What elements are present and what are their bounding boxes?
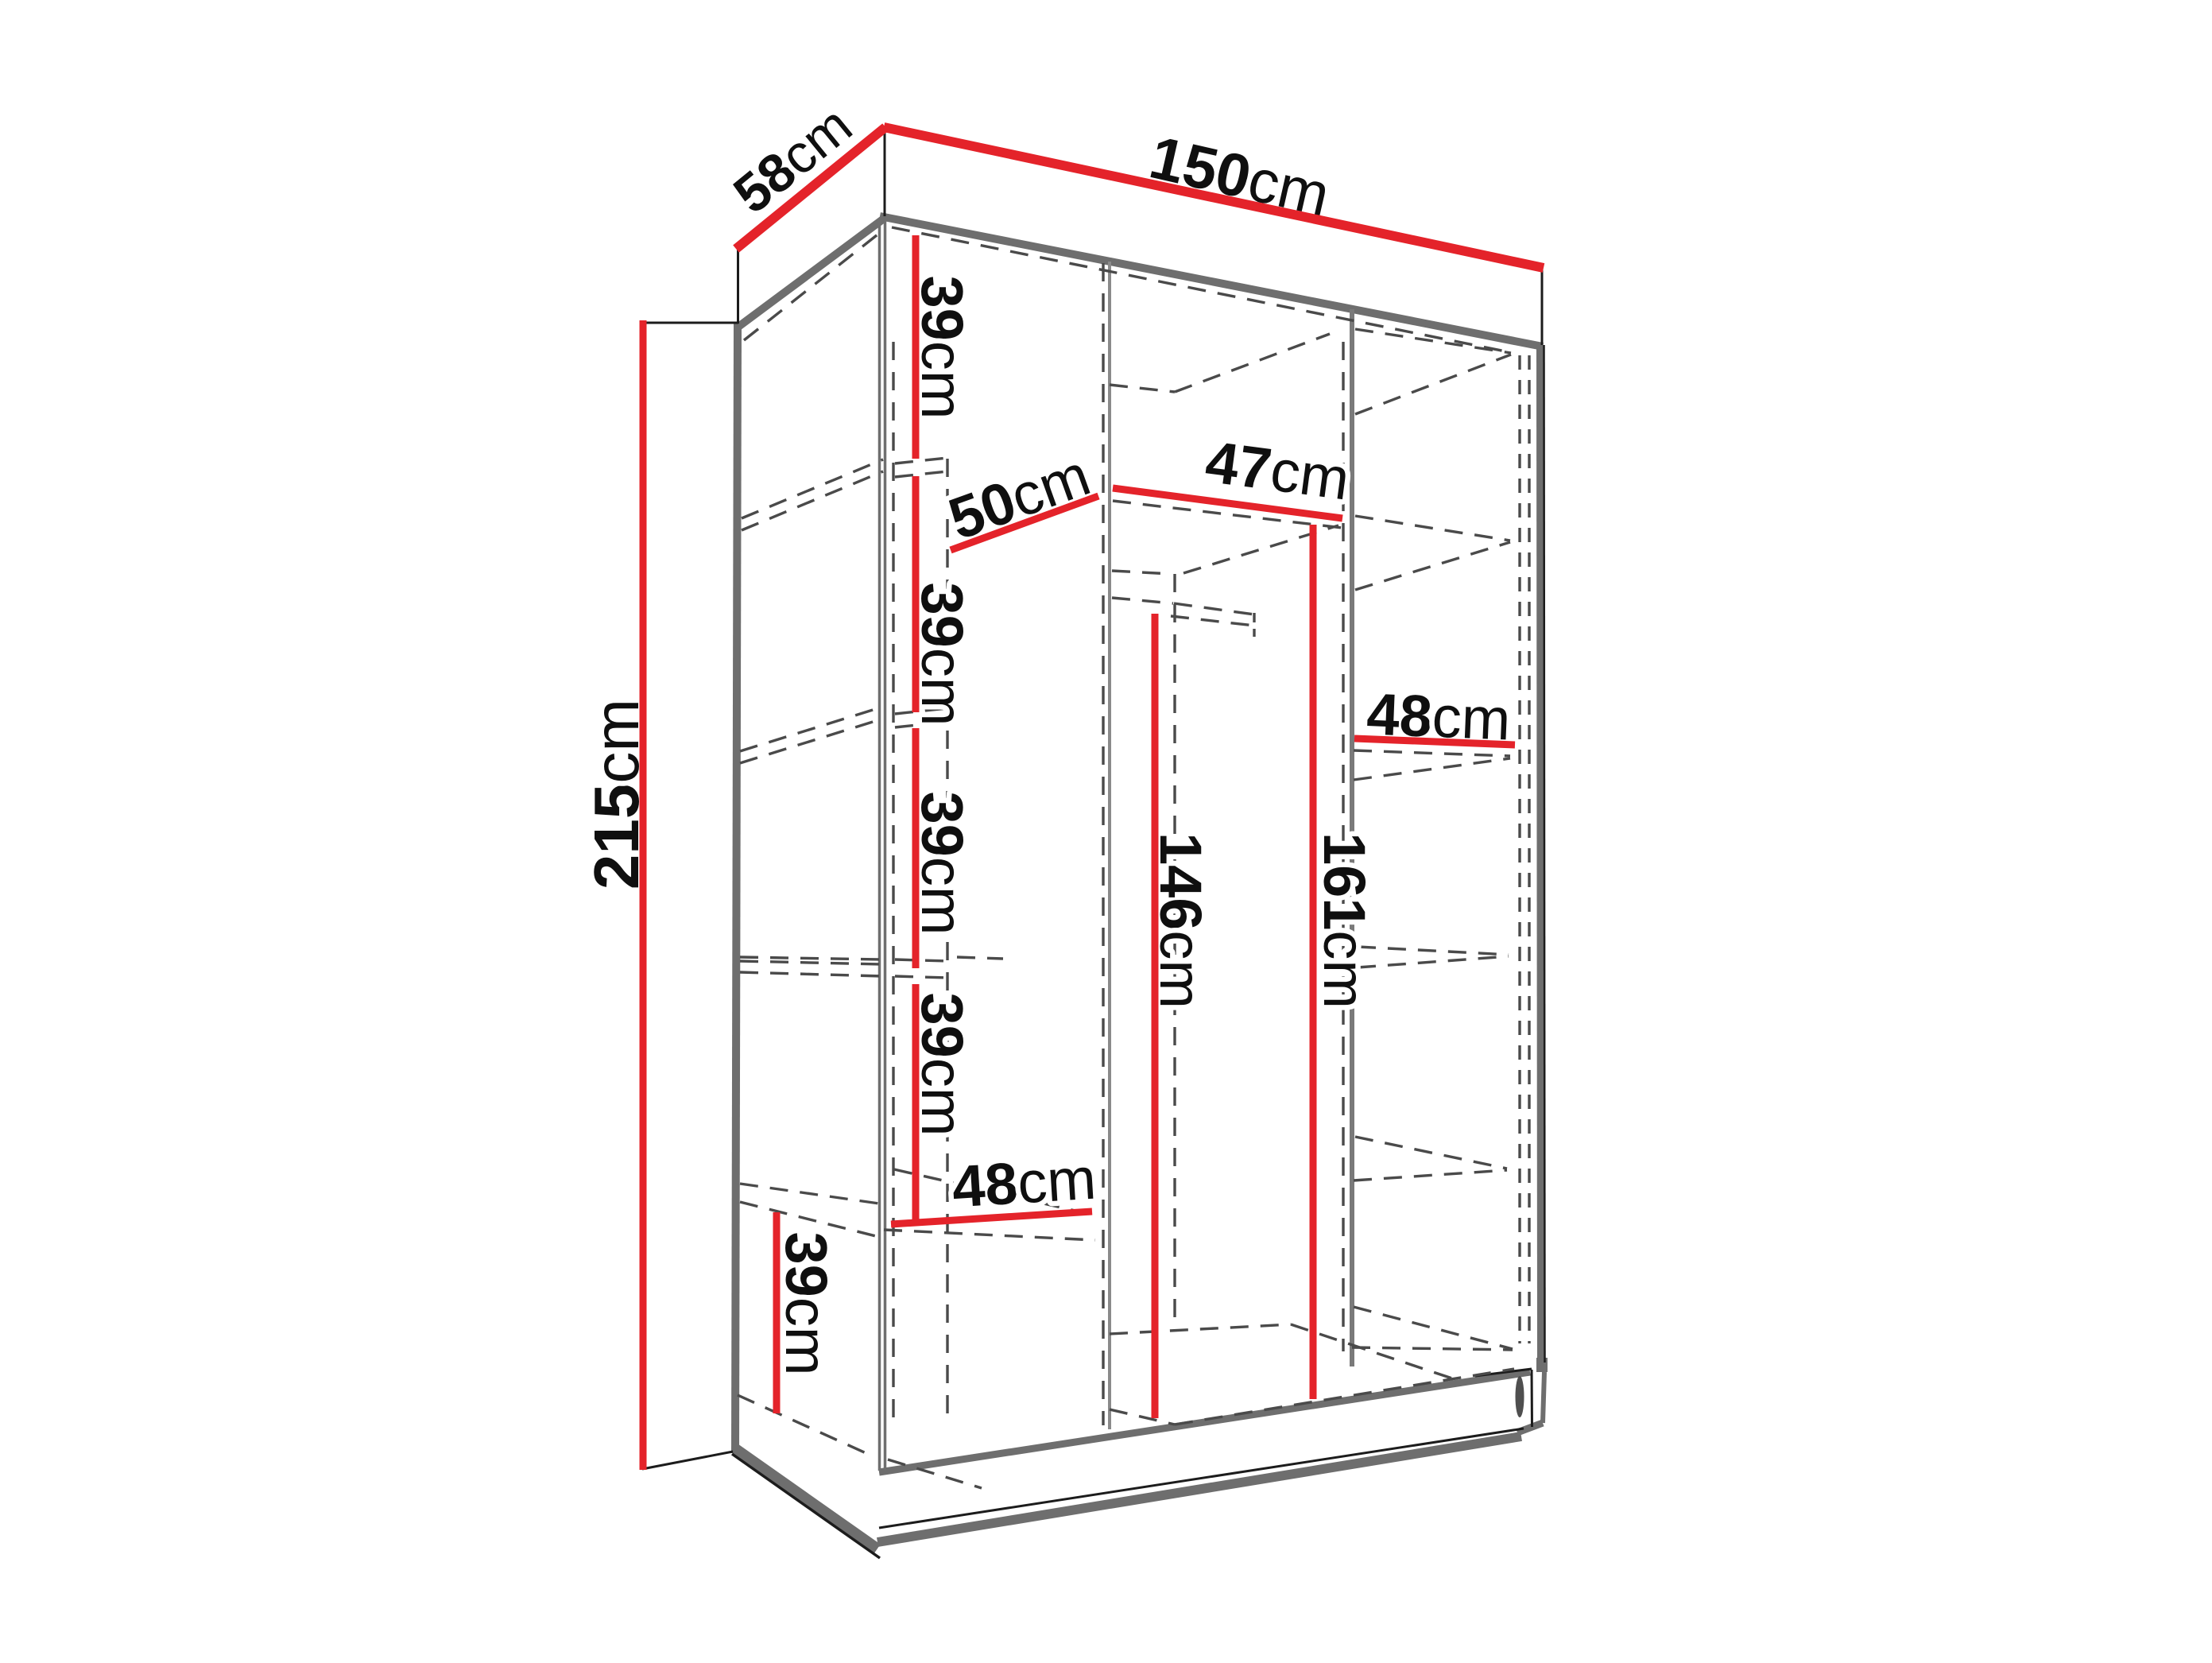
svg-text:39cm: 39cm [773,1232,839,1376]
svg-text:48cm: 48cm [951,1145,1098,1220]
svg-text:161cm: 161cm [1311,832,1377,1009]
